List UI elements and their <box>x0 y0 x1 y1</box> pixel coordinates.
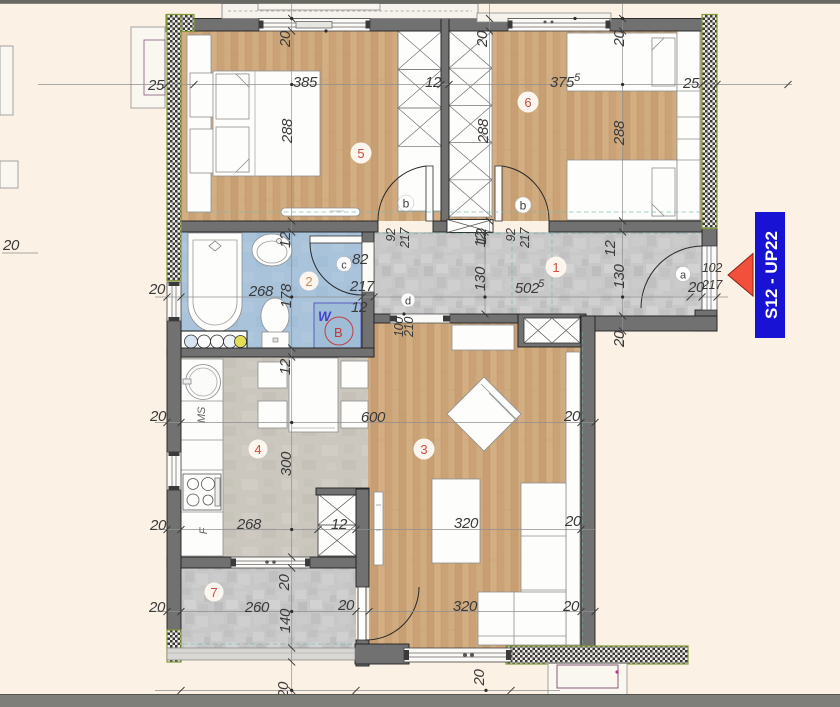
svg-text:W: W <box>318 309 332 324</box>
svg-text:20: 20 <box>276 574 293 592</box>
svg-text:82: 82 <box>352 251 369 268</box>
svg-text:a: a <box>680 270 687 282</box>
svg-text:20: 20 <box>149 408 167 425</box>
svg-text:20: 20 <box>148 281 166 298</box>
svg-text:5: 5 <box>357 146 364 161</box>
svg-text:288: 288 <box>475 118 492 144</box>
svg-text:217: 217 <box>398 227 412 249</box>
svg-text:217: 217 <box>701 278 723 292</box>
svg-text:4: 4 <box>254 442 261 457</box>
svg-text:288: 288 <box>611 120 628 146</box>
svg-text:20: 20 <box>564 513 582 530</box>
svg-text:S12 - UP22: S12 - UP22 <box>762 231 781 319</box>
svg-text:b: b <box>403 197 410 211</box>
svg-text:12: 12 <box>425 74 442 91</box>
svg-text:25: 25 <box>682 75 700 92</box>
svg-text:385: 385 <box>293 74 318 91</box>
svg-text:268: 268 <box>236 516 262 533</box>
svg-text:20: 20 <box>337 597 355 614</box>
svg-text:3: 3 <box>420 442 427 457</box>
svg-text:320: 320 <box>454 515 479 532</box>
svg-text:12: 12 <box>351 299 368 316</box>
svg-text:92: 92 <box>384 228 398 242</box>
svg-text:20: 20 <box>611 30 628 48</box>
svg-text:210: 210 <box>402 317 416 338</box>
svg-text:300: 300 <box>278 451 295 476</box>
svg-text:130: 130 <box>611 263 628 288</box>
svg-text:1: 1 <box>552 260 559 275</box>
svg-text:12: 12 <box>472 231 489 248</box>
svg-text:600: 600 <box>361 409 386 426</box>
svg-text:217: 217 <box>349 278 375 295</box>
svg-text:140: 140 <box>277 608 294 633</box>
svg-text:12: 12 <box>331 516 348 533</box>
svg-text:25: 25 <box>147 77 165 94</box>
svg-text:20: 20 <box>611 330 628 348</box>
svg-text:d: d <box>405 296 411 308</box>
svg-text:260: 260 <box>244 599 270 616</box>
svg-text:20: 20 <box>563 408 581 425</box>
svg-text:375: 375 <box>550 74 575 91</box>
svg-text:502: 502 <box>515 280 540 297</box>
svg-text:217: 217 <box>518 227 532 249</box>
svg-text:B: B <box>334 325 343 340</box>
svg-text:12: 12 <box>277 231 294 248</box>
svg-text:20: 20 <box>148 599 166 616</box>
svg-text:130: 130 <box>472 266 489 291</box>
svg-text:20: 20 <box>277 30 294 48</box>
svg-text:20: 20 <box>562 598 580 615</box>
svg-text:7: 7 <box>210 585 217 600</box>
svg-text:MS: MS <box>196 406 208 423</box>
svg-text:20: 20 <box>2 237 20 254</box>
svg-text:92: 92 <box>504 228 518 242</box>
svg-text:12: 12 <box>277 358 294 375</box>
svg-text:320: 320 <box>453 598 478 615</box>
svg-text:102: 102 <box>702 261 722 275</box>
svg-text:6: 6 <box>524 95 531 110</box>
svg-text:12: 12 <box>602 240 619 257</box>
svg-text:268: 268 <box>248 283 274 300</box>
svg-text:20: 20 <box>149 517 167 534</box>
svg-text:b: b <box>520 199 527 213</box>
svg-text:c: c <box>341 260 347 272</box>
svg-text:2: 2 <box>305 274 312 289</box>
svg-text:288: 288 <box>279 118 296 144</box>
svg-text:20: 20 <box>471 669 488 687</box>
svg-text:20: 20 <box>474 30 491 48</box>
svg-text:178: 178 <box>278 283 295 308</box>
